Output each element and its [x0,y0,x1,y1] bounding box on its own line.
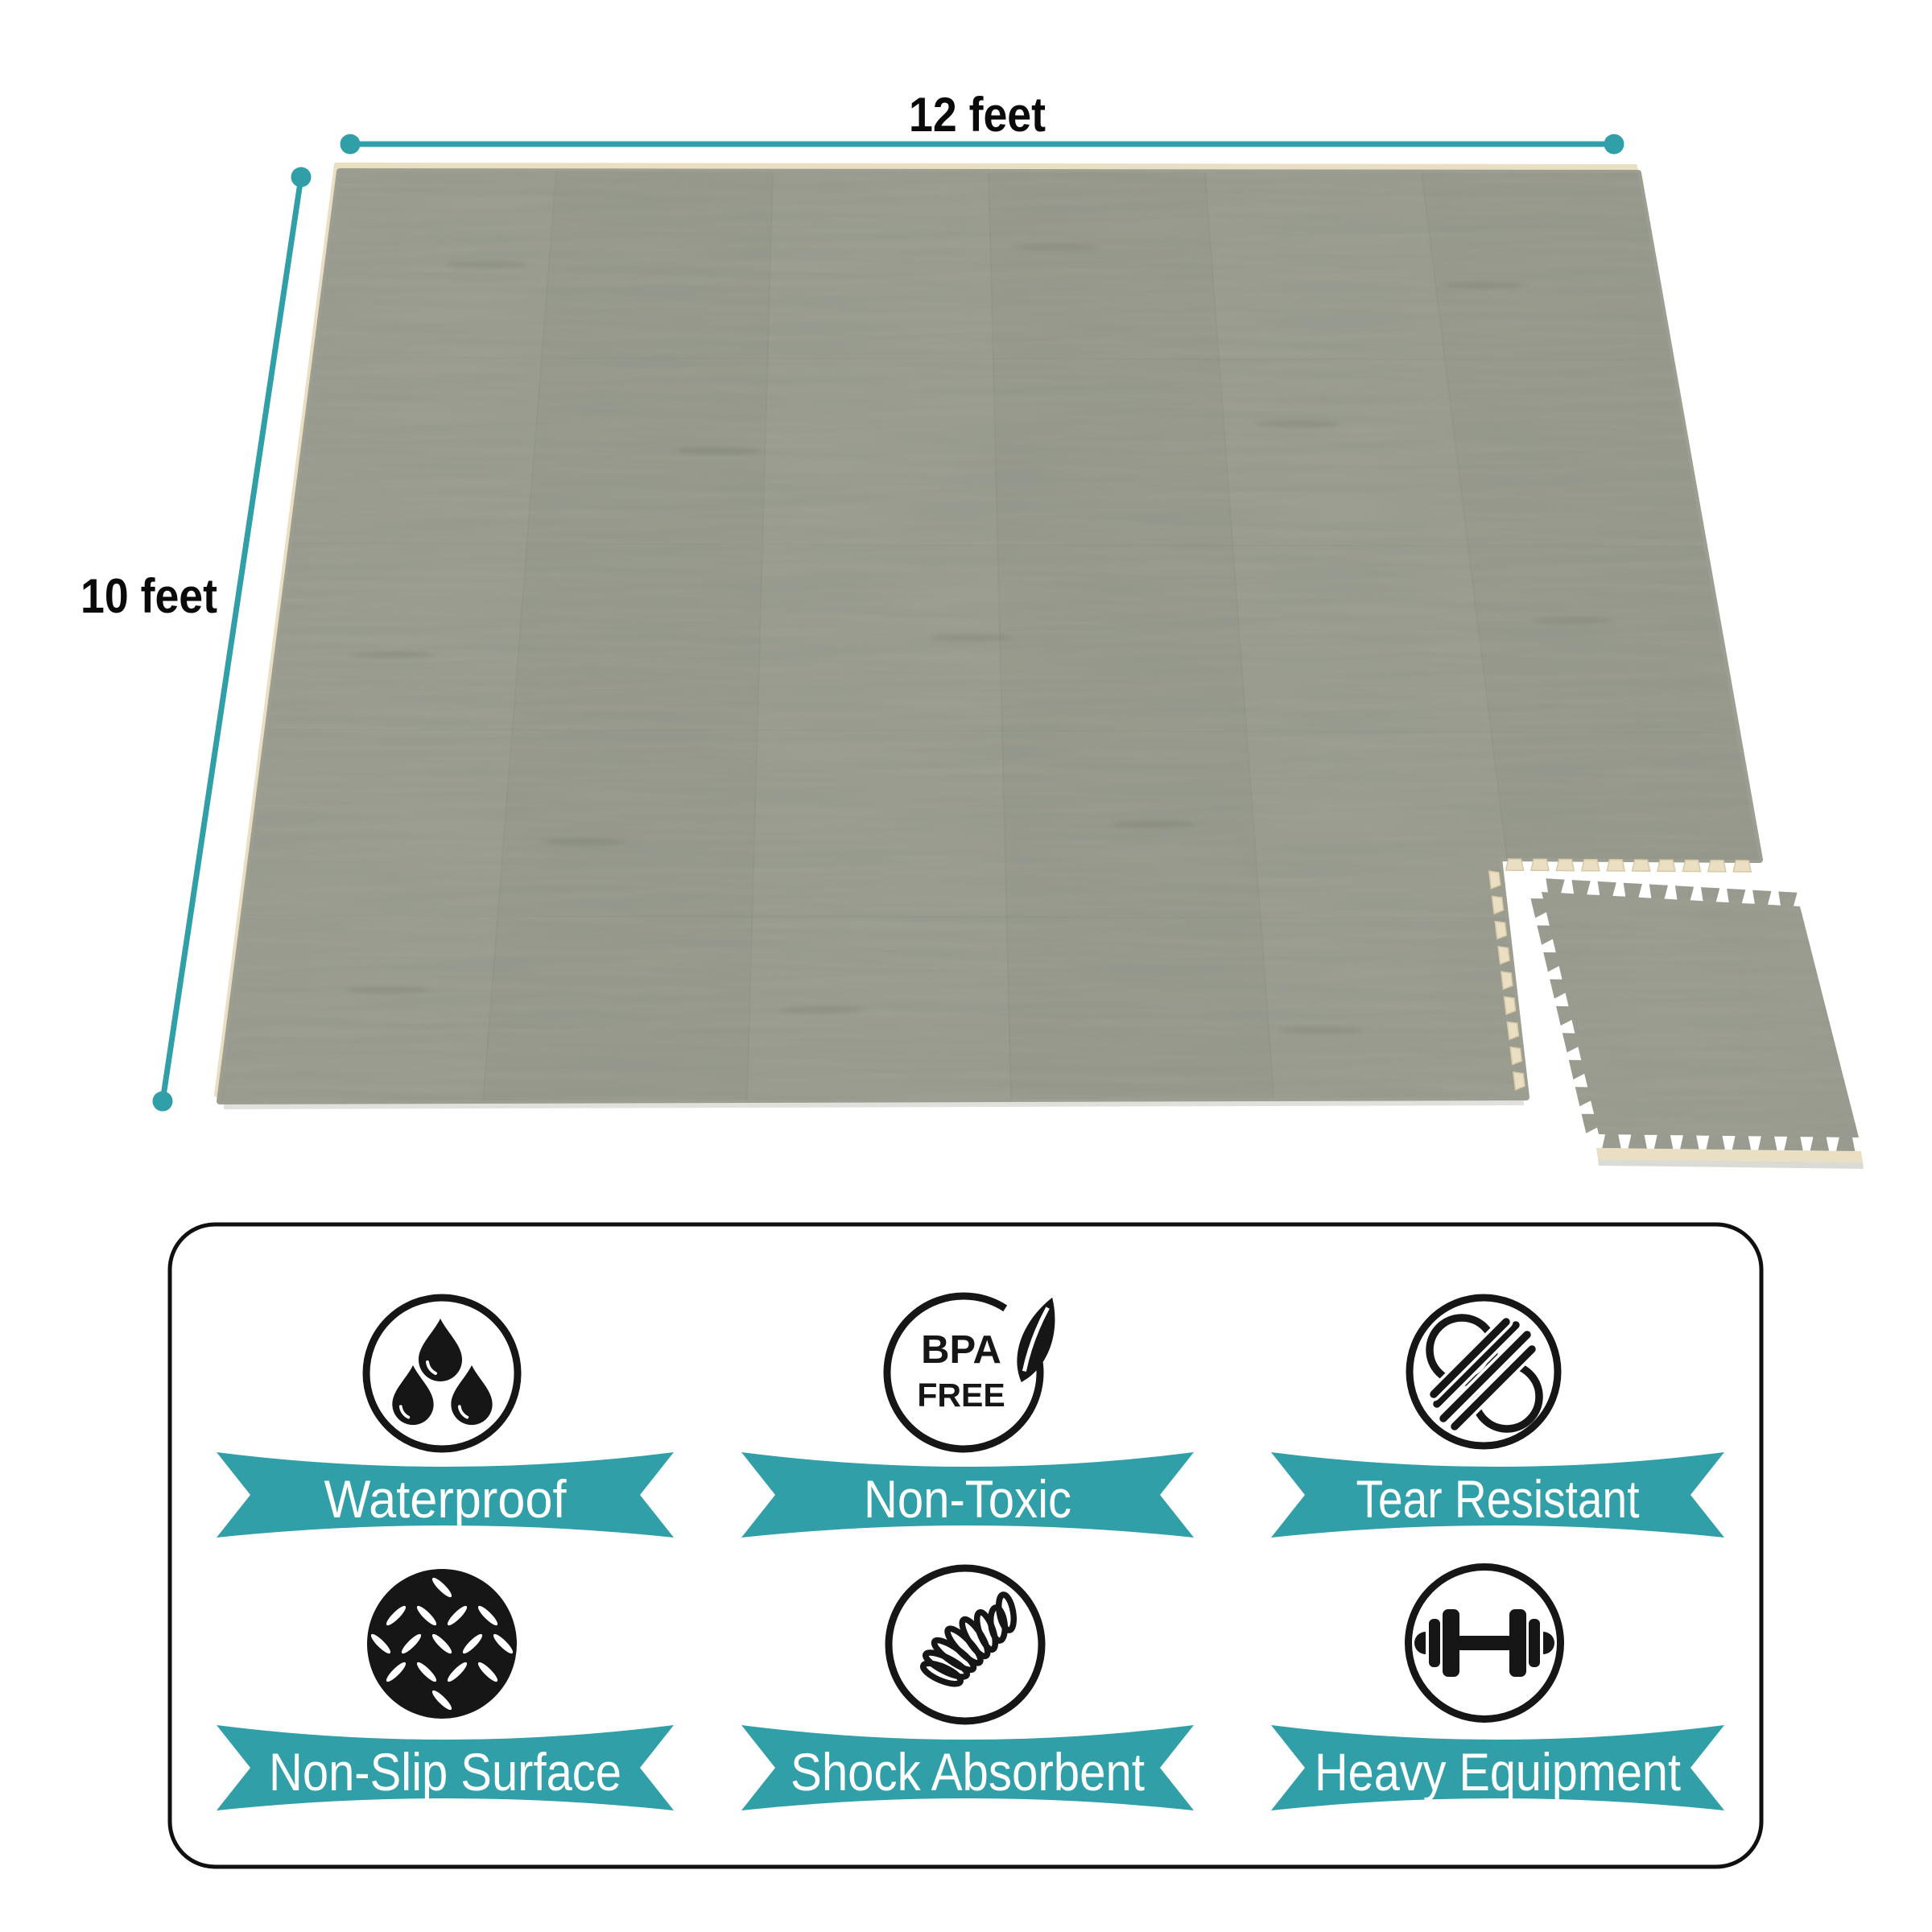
svg-text:10 feet: 10 feet [80,569,217,623]
svg-text:Non-Slip Surface: Non-Slip Surface [269,1742,621,1802]
svg-text:12 feet: 12 feet [909,88,1046,142]
svg-text:Waterproof: Waterproof [324,1469,568,1529]
svg-text:Shock Absorbent: Shock Absorbent [791,1742,1145,1802]
svg-text:Non-Toxic: Non-Toxic [864,1469,1071,1529]
svg-text:Heavy Equipment: Heavy Equipment [1315,1742,1681,1802]
svg-text:Tear Resistant: Tear Resistant [1356,1469,1640,1529]
svg-text:FREE: FREE [917,1377,1005,1414]
svg-text:BPA: BPA [921,1328,1001,1372]
